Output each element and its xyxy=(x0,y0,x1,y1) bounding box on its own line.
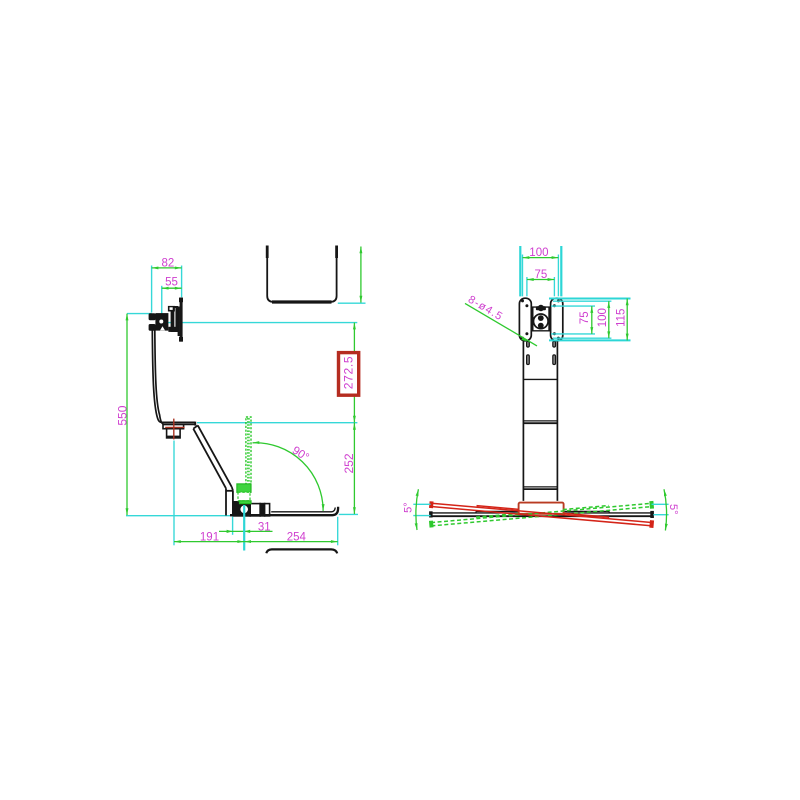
svg-text:75: 75 xyxy=(579,311,591,324)
svg-text:82: 82 xyxy=(162,257,175,269)
svg-text:254: 254 xyxy=(287,532,307,544)
svg-text:100: 100 xyxy=(529,247,548,259)
svg-text:75: 75 xyxy=(535,269,548,281)
svg-text:5°: 5° xyxy=(667,504,679,515)
svg-text:5°: 5° xyxy=(402,502,414,513)
svg-text:31: 31 xyxy=(258,521,271,533)
svg-text:191: 191 xyxy=(200,532,219,544)
svg-text:272.5: 272.5 xyxy=(342,356,356,390)
svg-text:252: 252 xyxy=(342,453,356,473)
svg-text:55: 55 xyxy=(165,277,178,289)
svg-text:100: 100 xyxy=(597,308,609,327)
svg-text:550: 550 xyxy=(116,405,130,425)
svg-text:115: 115 xyxy=(615,309,627,327)
